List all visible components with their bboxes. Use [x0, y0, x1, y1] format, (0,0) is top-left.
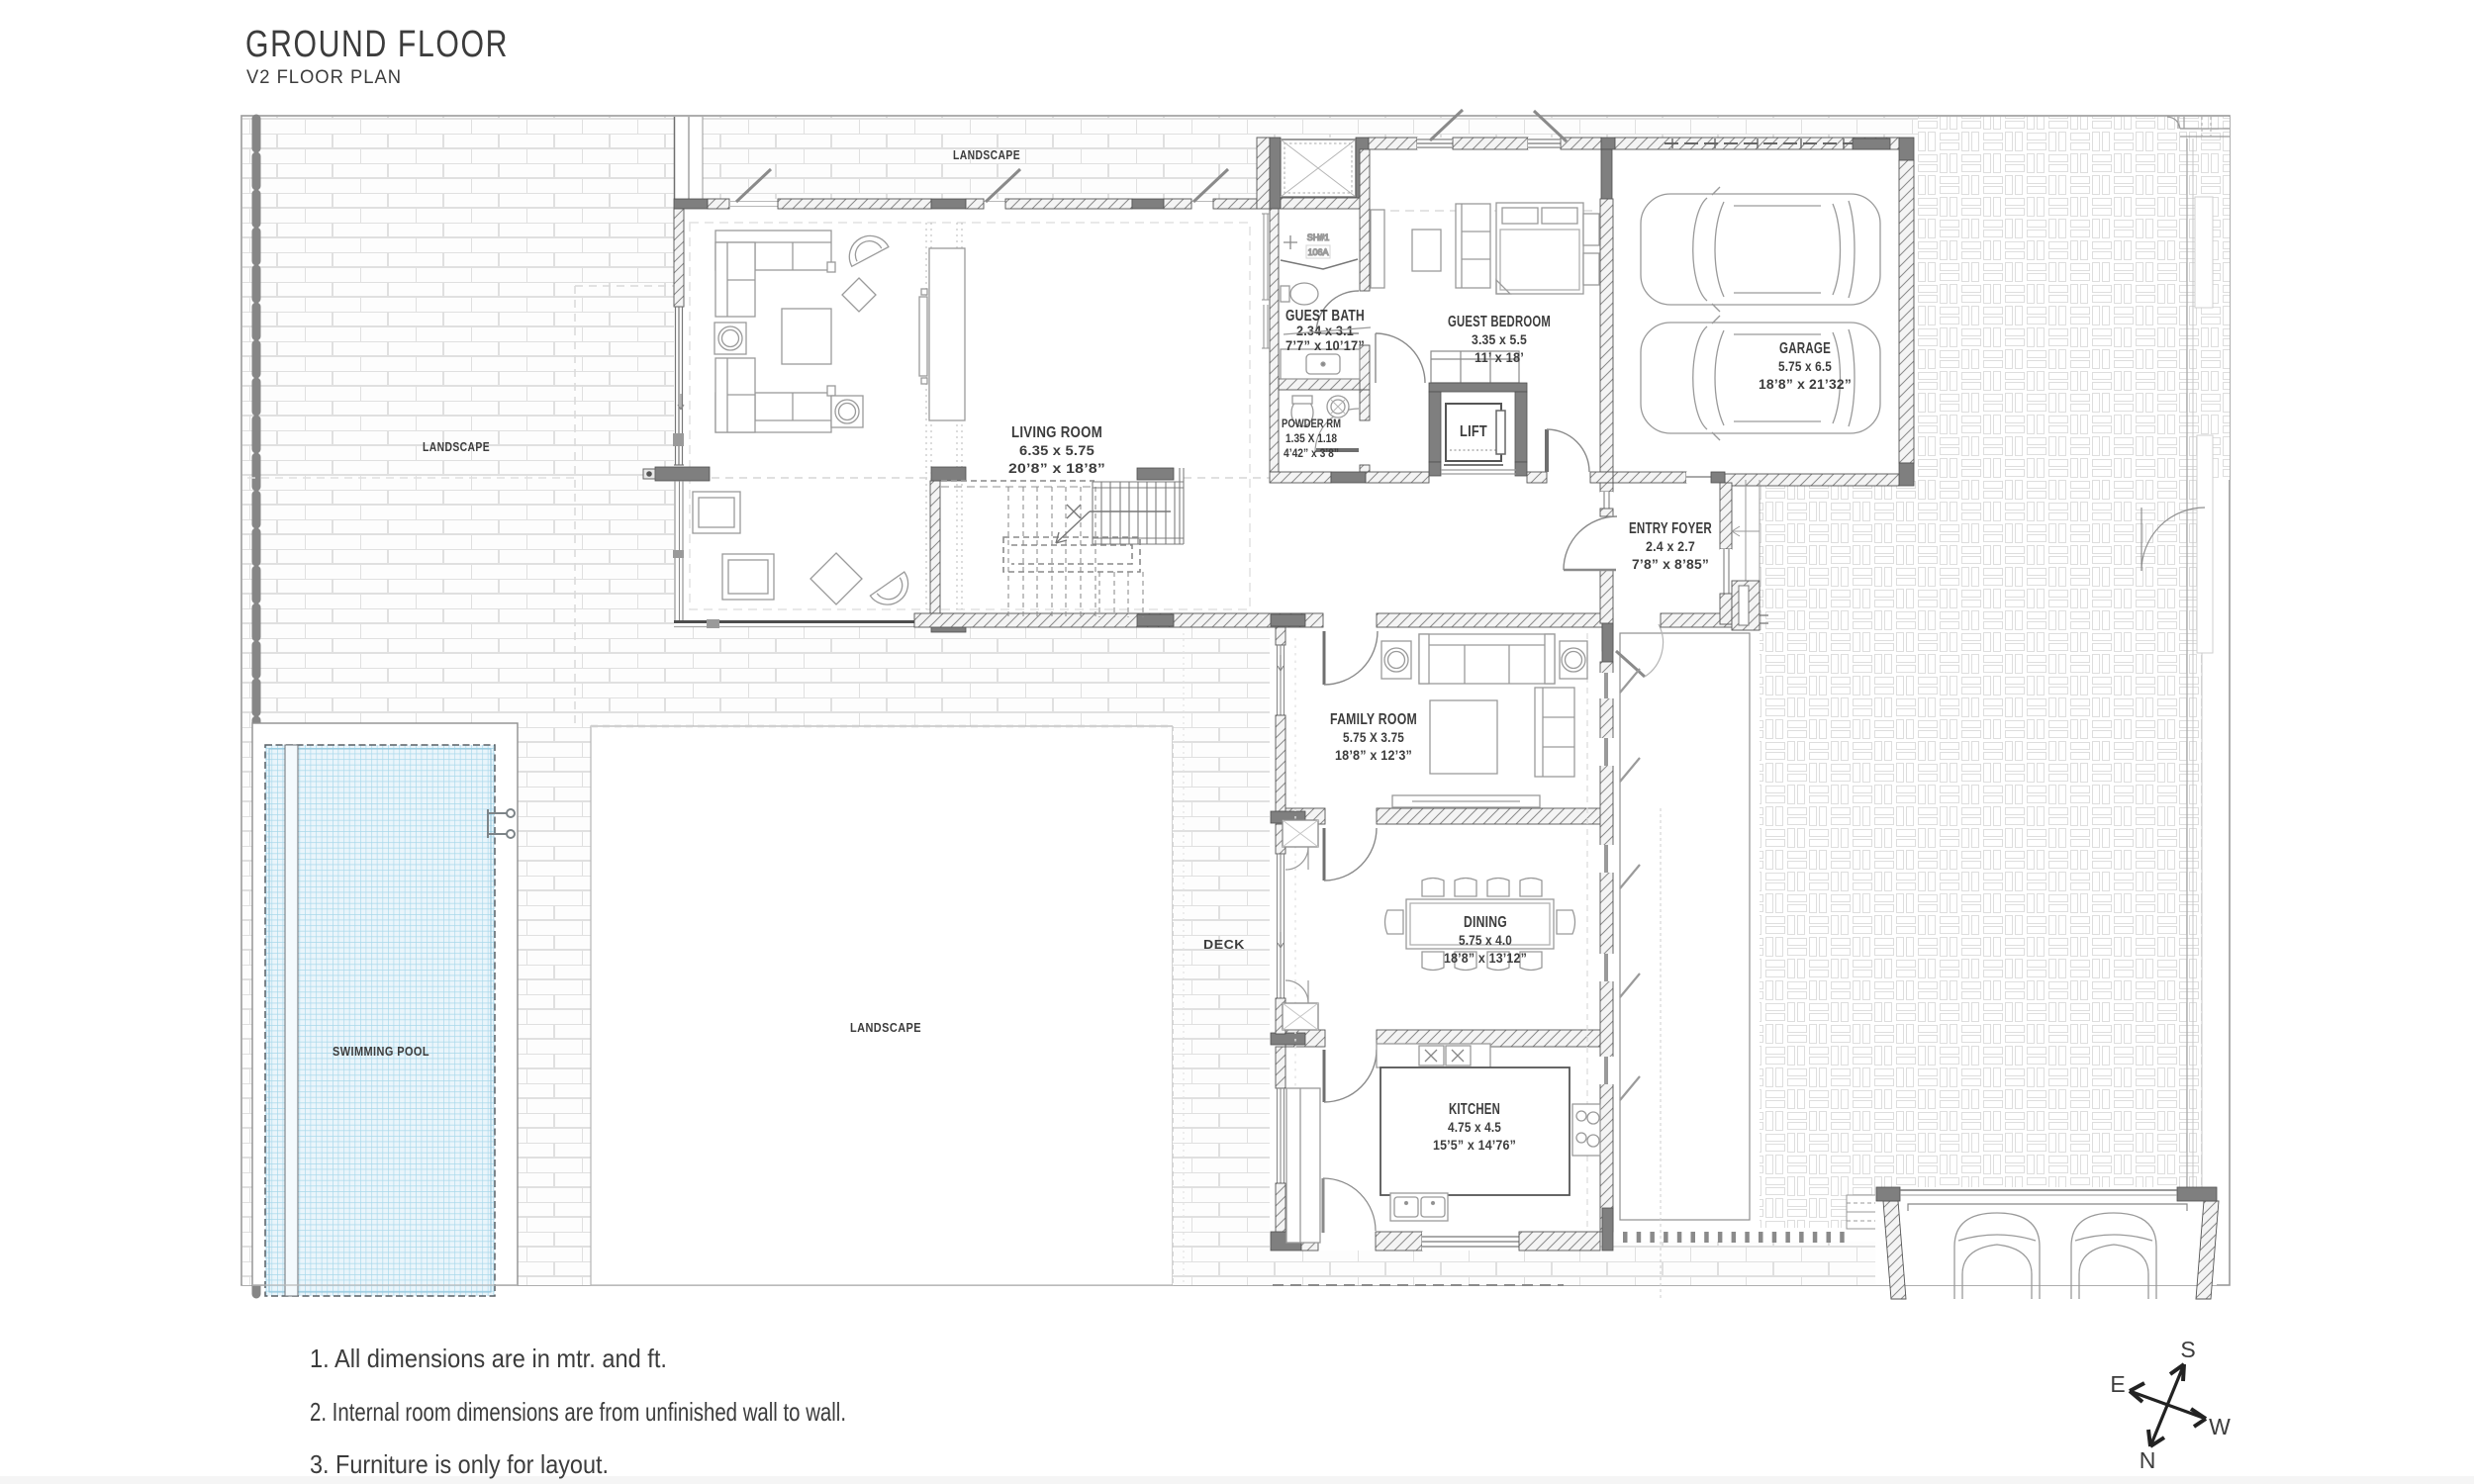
svg-text:LANDSCAPE: LANDSCAPE: [423, 439, 490, 454]
svg-text:15’5” x 14’76”: 15’5” x 14’76”: [1433, 1138, 1516, 1153]
svg-text:S: S: [2180, 1337, 2195, 1362]
svg-text:4’42” x 3’8”: 4’42” x 3’8”: [1284, 446, 1339, 460]
svg-text:11’ x 18’: 11’ x 18’: [1475, 350, 1524, 365]
svg-text:GUEST BATH: GUEST BATH: [1285, 308, 1365, 325]
svg-text:7’7” x 10’17”: 7’7” x 10’17”: [1285, 338, 1365, 353]
svg-text:KITCHEN: KITCHEN: [1449, 1101, 1500, 1118]
svg-text:5.75 X 3.75: 5.75 X 3.75: [1343, 730, 1404, 745]
svg-text:E: E: [2110, 1371, 2125, 1397]
svg-text:N: N: [2140, 1447, 2156, 1473]
svg-text:LIFT: LIFT: [1460, 423, 1487, 440]
svg-text:18’8” x 13’12”: 18’8” x 13’12”: [1444, 951, 1527, 966]
svg-text:18’8” x 21’32”: 18’8” x 21’32”: [1759, 377, 1852, 392]
svg-text:3. Furniture is only for layou: 3. Furniture is only for layout.: [310, 1449, 609, 1479]
svg-text:GROUND FLOOR: GROUND FLOOR: [245, 24, 509, 65]
svg-text:W: W: [2209, 1414, 2231, 1439]
svg-text:V2 FLOOR PLAN: V2 FLOOR PLAN: [246, 67, 402, 88]
svg-text:6.35 x 5.75: 6.35 x 5.75: [1019, 443, 1094, 458]
svg-text:GARAGE: GARAGE: [1779, 340, 1831, 357]
svg-text:SH#1: SH#1: [1307, 232, 1330, 242]
svg-text:3.35 x 5.5: 3.35 x 5.5: [1472, 332, 1527, 347]
svg-text:4.75 x 4.5: 4.75 x 4.5: [1448, 1120, 1501, 1135]
svg-text:LANDSCAPE: LANDSCAPE: [850, 1020, 921, 1035]
svg-text:ENTRY FOYER: ENTRY FOYER: [1629, 520, 1712, 537]
svg-text:18’8” x 12’3”: 18’8” x 12’3”: [1335, 748, 1412, 763]
svg-text:5.75 x 4.0: 5.75 x 4.0: [1459, 933, 1512, 948]
svg-text:DECK: DECK: [1203, 937, 1245, 952]
svg-text:2. Internal room dimensions ar: 2. Internal room dimensions are from unf…: [310, 1397, 846, 1427]
svg-text:FAMILY ROOM: FAMILY ROOM: [1330, 711, 1417, 728]
svg-text:POWDER RM: POWDER RM: [1282, 417, 1341, 430]
svg-text:7’8” x 8’85”: 7’8” x 8’85”: [1632, 557, 1709, 572]
svg-text:1. All dimensions are in mtr.: 1. All dimensions are in mtr. and ft.: [310, 1344, 667, 1373]
svg-text:2.4 x 2.7: 2.4 x 2.7: [1646, 539, 1695, 554]
svg-text:106A: 106A: [1307, 247, 1328, 257]
svg-text:20’8” x 18’8”: 20’8” x 18’8”: [1008, 461, 1105, 476]
svg-text:LANDSCAPE: LANDSCAPE: [953, 147, 1020, 162]
svg-text:1.35 X 1.18: 1.35 X 1.18: [1285, 431, 1337, 445]
svg-text:DINING: DINING: [1464, 914, 1507, 931]
svg-text:SWIMMING POOL: SWIMMING POOL: [333, 1044, 429, 1059]
svg-text:GUEST BEDROOM: GUEST BEDROOM: [1448, 314, 1551, 330]
svg-text:LIVING ROOM: LIVING ROOM: [1011, 424, 1102, 441]
svg-text:5.75 x 6.5: 5.75 x 6.5: [1778, 359, 1832, 374]
